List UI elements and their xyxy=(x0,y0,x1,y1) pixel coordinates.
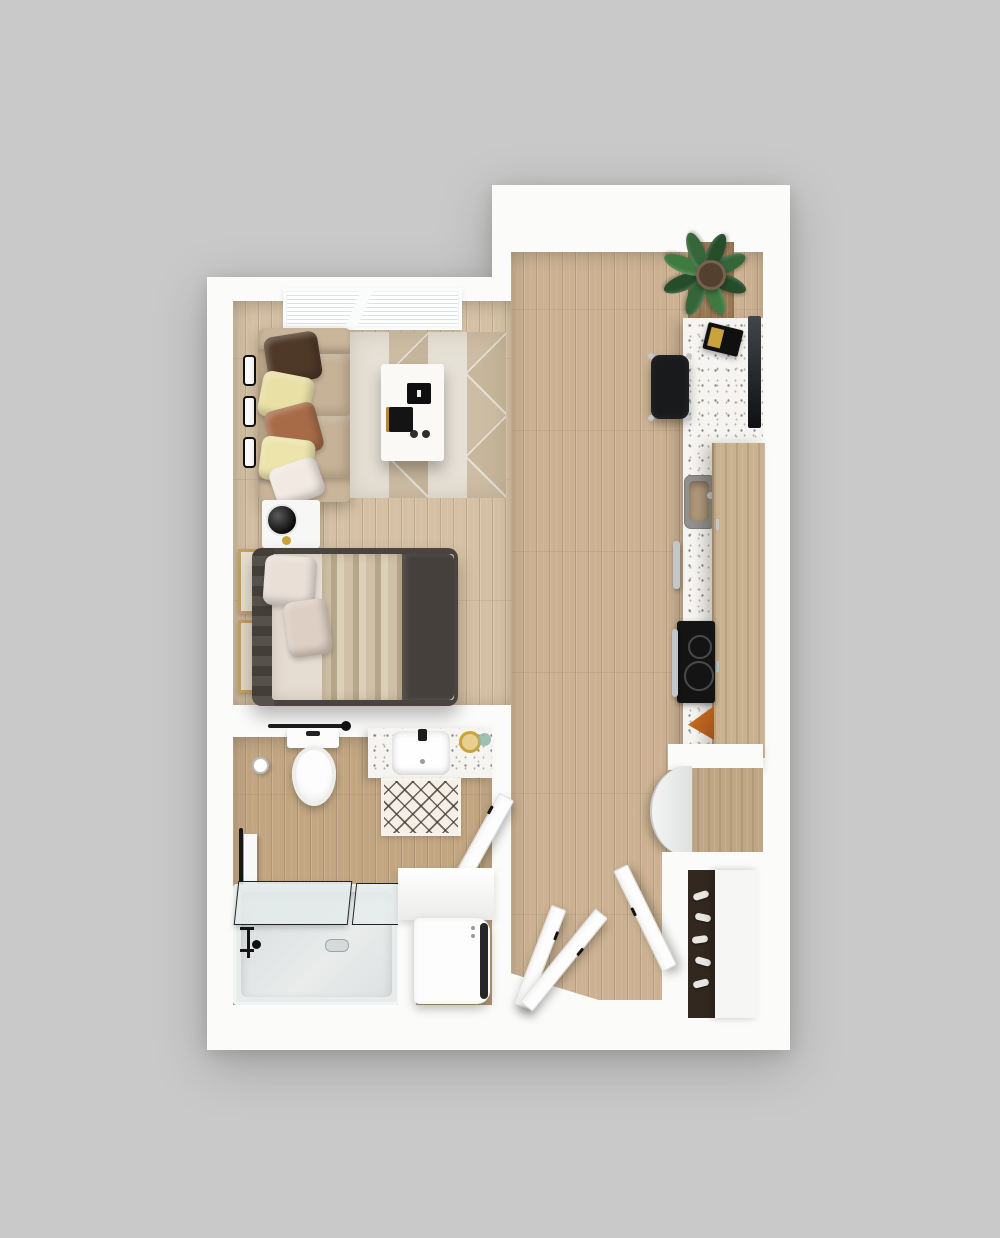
tub-faucet-cross xyxy=(240,927,254,930)
shoe xyxy=(692,935,709,944)
washer-dryer xyxy=(414,918,490,1004)
glass-jar xyxy=(478,733,491,746)
niche-ledge xyxy=(398,868,494,920)
glass-tub-screen xyxy=(352,883,404,925)
wall-vent-bar xyxy=(243,355,256,386)
bathroom-vanity xyxy=(368,728,492,778)
toilet-tank xyxy=(287,728,339,748)
entry-closet xyxy=(662,852,763,1035)
glass-tub-screen xyxy=(234,881,353,925)
sink-faucet xyxy=(418,729,427,741)
chair-leg xyxy=(686,353,692,359)
tub-faucet-cross xyxy=(240,949,254,952)
small-decor xyxy=(282,536,291,545)
wall-mounted-tv xyxy=(748,316,761,428)
tub-faucet-pipe xyxy=(247,930,250,958)
shoe xyxy=(694,912,711,922)
diamond-bath-mat xyxy=(381,778,461,836)
table-knob xyxy=(422,430,430,438)
wall-vent-bar xyxy=(243,437,256,468)
oven-handle xyxy=(672,629,678,697)
wall-vent-bar xyxy=(243,396,256,427)
plant-pot xyxy=(696,260,726,290)
window-blinds xyxy=(287,292,458,326)
bed-pillow xyxy=(282,597,333,659)
washer-dial xyxy=(471,926,475,930)
floor-plan-render xyxy=(0,0,1000,1238)
toilet-paper-holder xyxy=(252,757,269,774)
upper-cabinets xyxy=(712,443,765,758)
refrigerator-cabinet xyxy=(686,768,763,854)
platform-bed xyxy=(252,548,458,706)
serving-tray xyxy=(386,407,413,432)
apartment-plan xyxy=(0,0,1000,1238)
dark-duvet xyxy=(402,554,454,700)
shoe xyxy=(694,956,711,967)
chair-leg xyxy=(648,415,654,421)
burner-ring xyxy=(684,661,714,691)
flush-button xyxy=(306,731,320,736)
washer-door-seal xyxy=(480,923,488,999)
serving-tray xyxy=(407,383,431,404)
table-knob xyxy=(410,430,418,438)
induction-cooktop xyxy=(677,621,715,703)
closet-interior xyxy=(688,870,758,1018)
striped-throw-blanket xyxy=(322,554,406,700)
coffee-table xyxy=(381,364,444,461)
cabinet-handle xyxy=(716,661,719,672)
laptop-screen xyxy=(707,327,724,349)
sliding-closet-panel xyxy=(715,870,758,1018)
window xyxy=(283,288,462,330)
sink-drain xyxy=(420,759,425,764)
tub-spout xyxy=(252,940,261,949)
shoe xyxy=(692,978,709,989)
chair-leg xyxy=(686,415,692,421)
nightstand xyxy=(262,500,320,548)
dishwasher-handle xyxy=(673,541,680,589)
washer-dial xyxy=(471,934,475,938)
robe-hook xyxy=(341,721,351,731)
cabinet-handle xyxy=(716,519,719,530)
sink-basin xyxy=(689,481,709,521)
burner-ring xyxy=(688,635,712,659)
chair-leg xyxy=(648,353,654,359)
desk-chair xyxy=(651,355,689,419)
tub-drain xyxy=(325,939,349,952)
table-lamp xyxy=(266,504,298,536)
tray-item xyxy=(417,390,421,397)
basin-sink xyxy=(392,731,450,775)
shoe-shelf xyxy=(688,870,715,1018)
shoe xyxy=(692,890,709,902)
potted-plant xyxy=(664,232,752,324)
